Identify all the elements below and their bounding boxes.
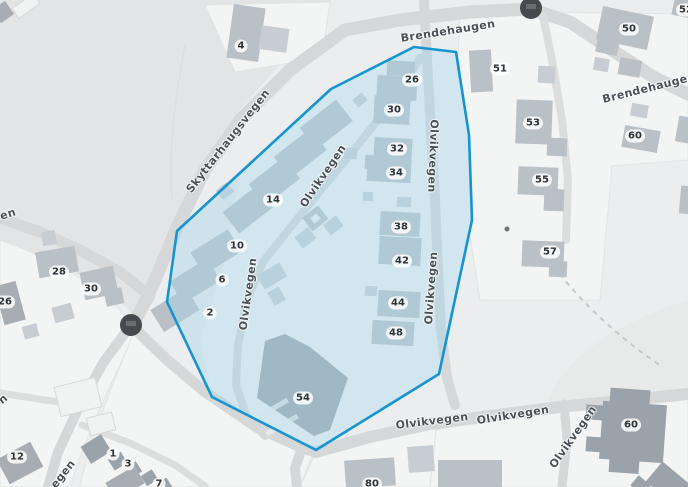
small-dot-marker-icon [505,227,510,232]
junction-marker-detail [526,4,536,9]
junction-marker-detail [126,321,136,326]
map-canvas[interactable]: BrendehaugenBrendehaugenSkyttarhaugsvege… [0,0,688,487]
map-base [0,0,688,487]
